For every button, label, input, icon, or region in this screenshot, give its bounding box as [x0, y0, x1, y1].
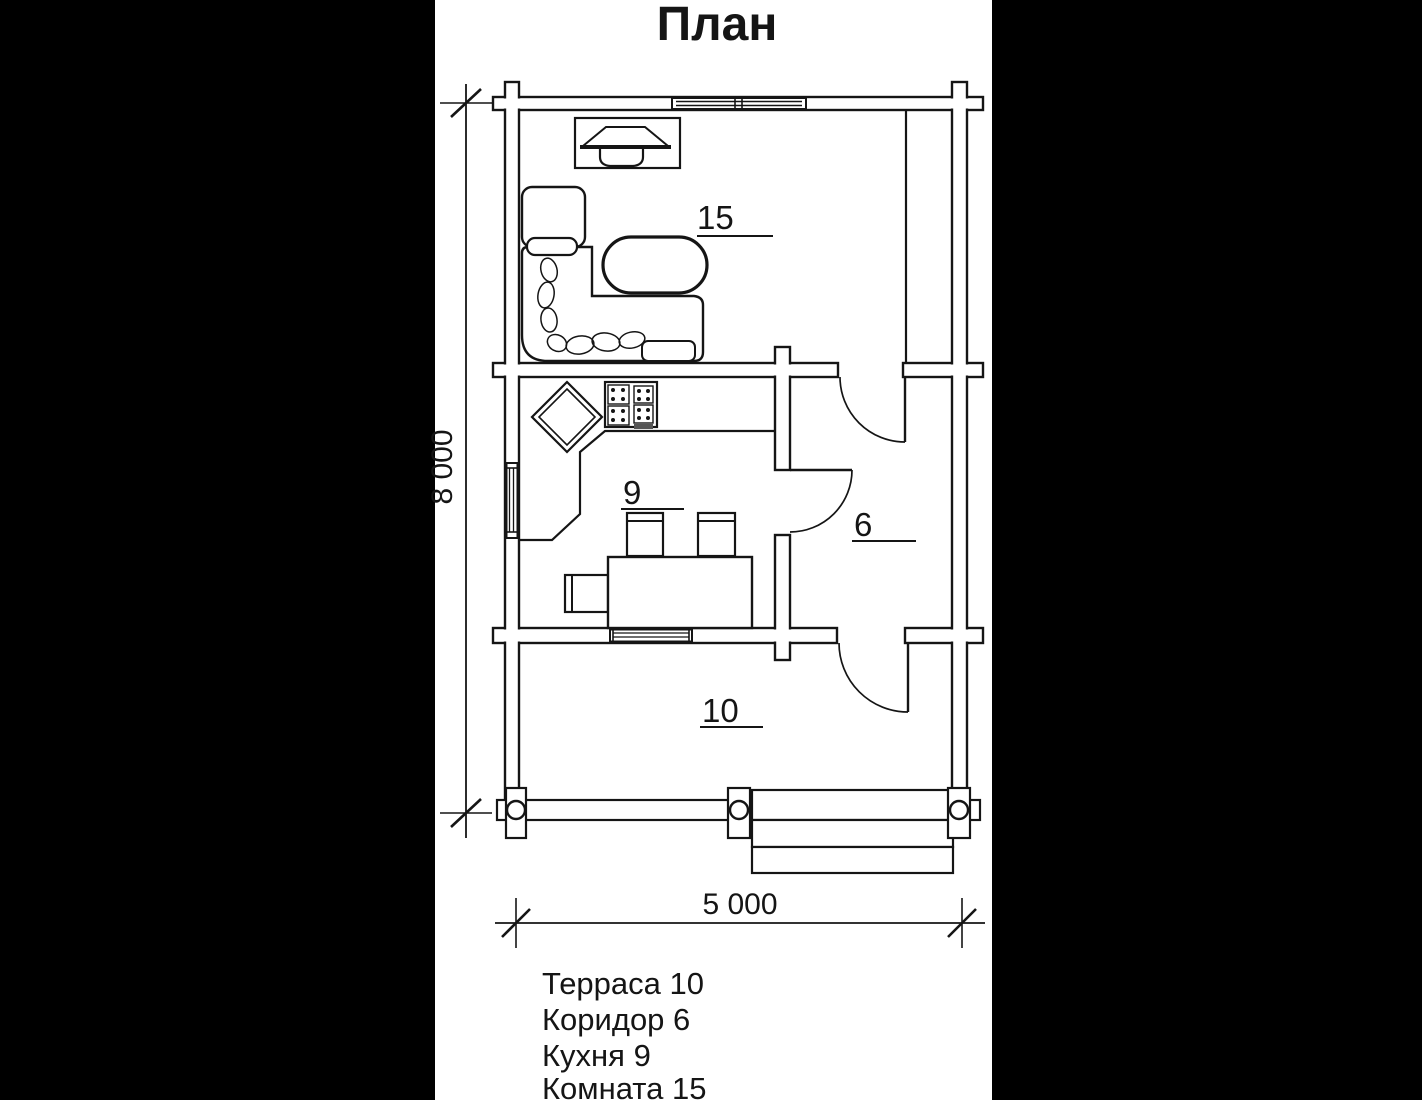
room-label-10: 10	[702, 692, 739, 729]
stove-detail-strip	[634, 424, 653, 429]
stove-heater	[575, 118, 680, 168]
legend-item-terrace: Терраса 10	[542, 966, 704, 1001]
floor-plan-page: План	[0, 0, 1422, 1100]
dining-chair	[565, 575, 608, 612]
room-label-15: 15	[697, 199, 734, 236]
room-label-9: 9	[623, 474, 641, 511]
legend-item-room: Комната 15	[542, 1071, 706, 1100]
dimension-height-label: 8 000	[426, 429, 459, 504]
wall-middle-right	[903, 363, 983, 377]
wall-bottom-right	[905, 628, 983, 643]
plan-title: План	[657, 0, 778, 51]
coffee-table	[603, 237, 707, 293]
dining-chair	[627, 513, 663, 556]
dimension-width-label: 5 000	[702, 888, 777, 921]
terrace-steps	[752, 790, 953, 873]
legend-item-kitchen: Кухня 9	[542, 1038, 651, 1073]
floor-plan-drawing: План	[0, 0, 1422, 1100]
wall-right	[952, 82, 967, 805]
wall-left	[505, 82, 519, 805]
dining-table	[608, 557, 752, 628]
room-label-6: 6	[854, 506, 872, 543]
legend-item-corridor: Коридор 6	[542, 1002, 690, 1037]
dining-chair	[698, 513, 735, 556]
legend: Терраса 10 Коридор 6 Кухня 9 Комната 15	[542, 966, 706, 1100]
kitchen-stove	[605, 382, 657, 429]
